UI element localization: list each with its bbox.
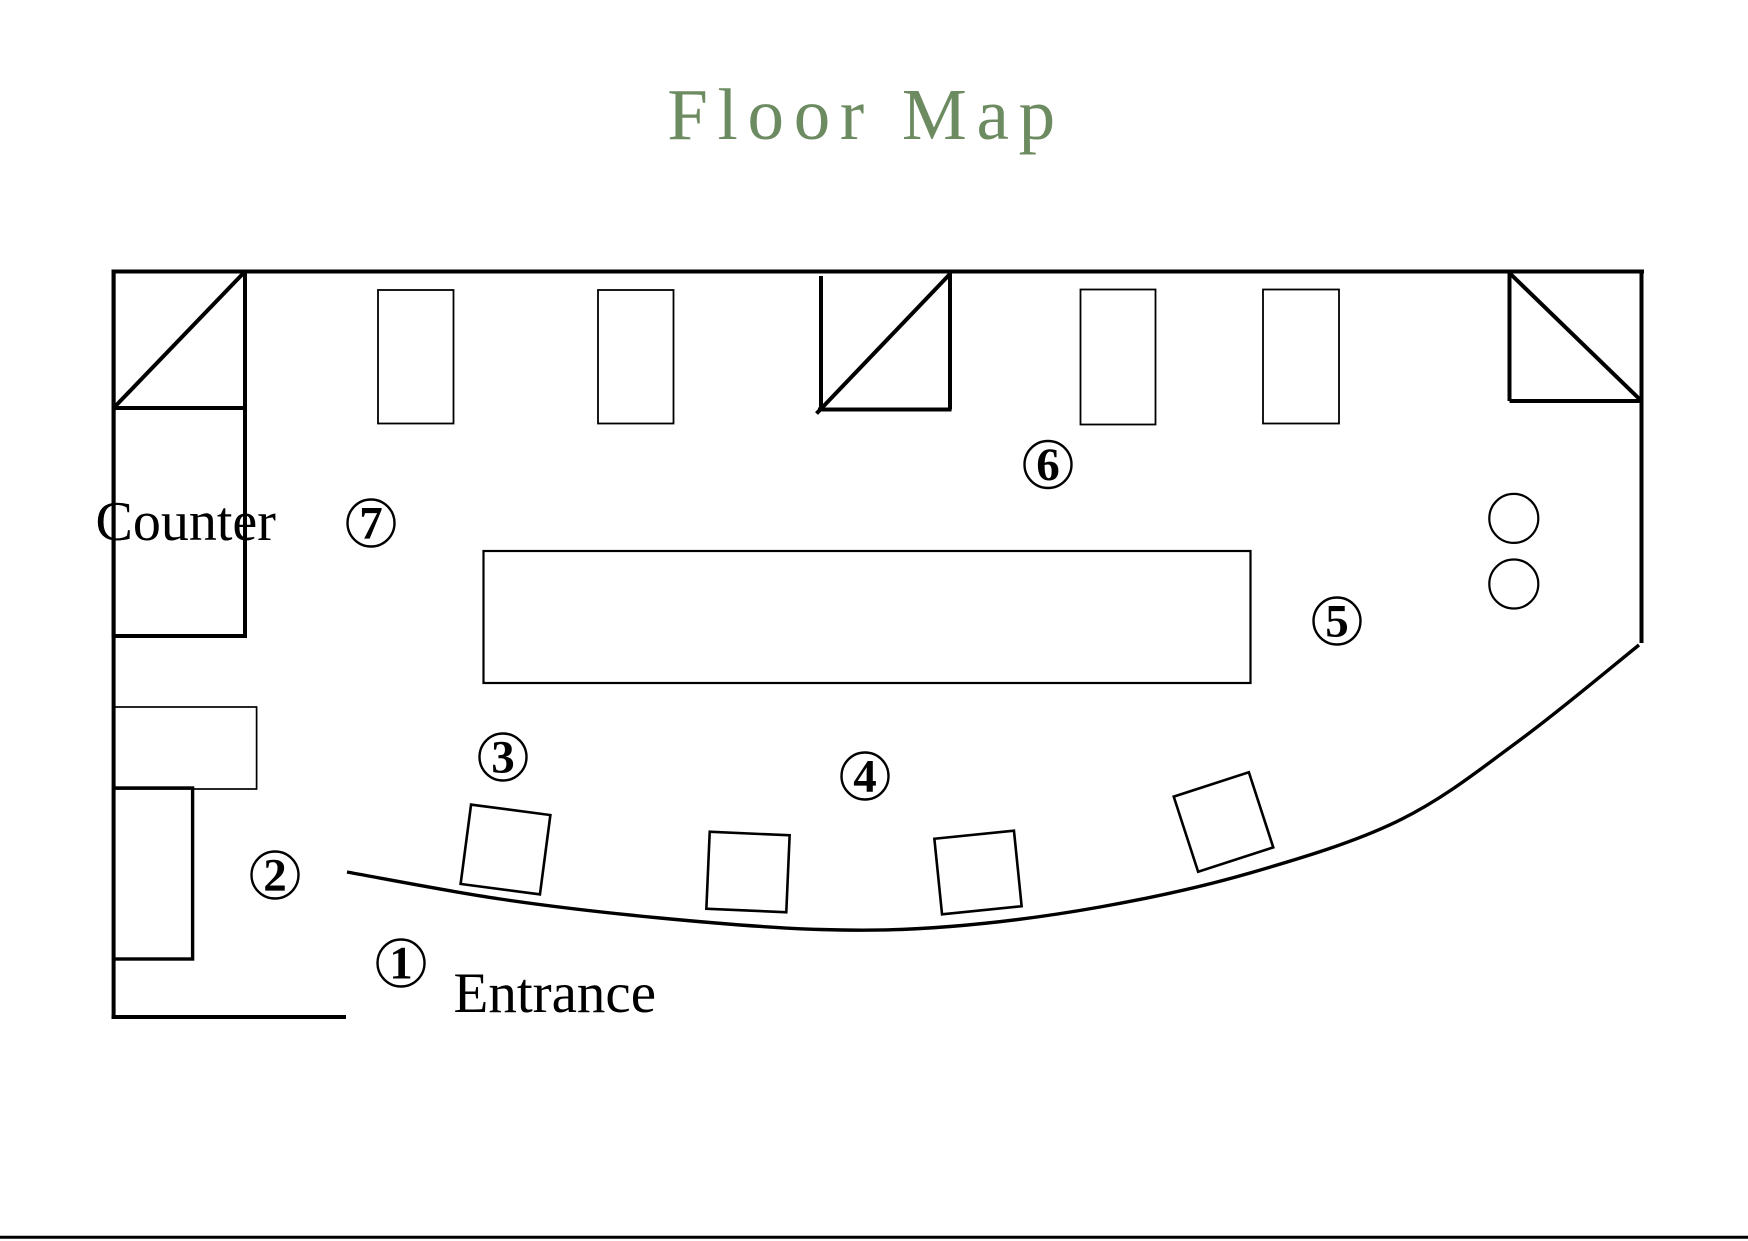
svg-text:2: 2: [263, 850, 287, 902]
svg-text:Entrance: Entrance: [454, 962, 657, 1025]
svg-text:Floor Map: Floor Map: [667, 74, 1065, 155]
svg-text:5: 5: [1325, 596, 1349, 648]
svg-text:3: 3: [491, 732, 515, 784]
svg-text:7: 7: [359, 498, 383, 550]
svg-text:4: 4: [853, 751, 877, 803]
svg-text:1: 1: [389, 938, 413, 990]
svg-text:Counter: Counter: [96, 491, 277, 553]
svg-text:6: 6: [1036, 439, 1060, 491]
